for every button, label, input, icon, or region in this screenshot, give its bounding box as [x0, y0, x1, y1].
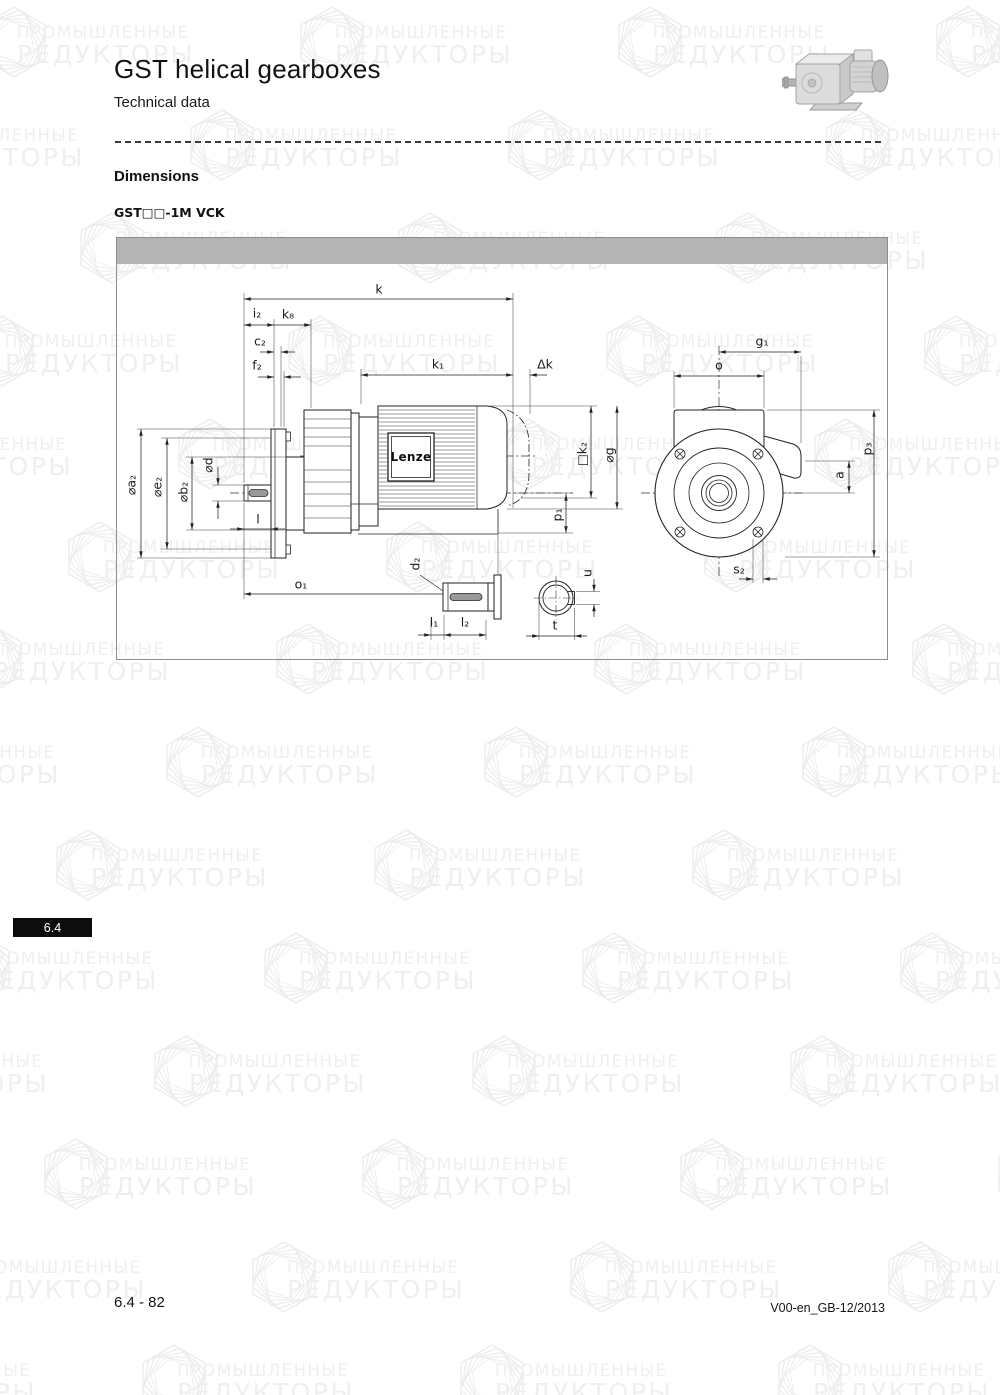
side-view — [230, 406, 573, 558]
shaft-detail — [420, 575, 578, 620]
dim-label-p: p₁ — [551, 509, 564, 522]
shaft-keyway — [249, 490, 268, 497]
dim-label-d: d₂ — [409, 558, 422, 571]
dim-label-b: ⌀b₂ — [177, 482, 190, 502]
dim-label-l: l₁ — [430, 616, 438, 629]
dim-label-u: u — [581, 569, 594, 577]
dim-label-d: ⌀d — [202, 457, 215, 472]
dim-label-i: i₂ — [253, 307, 261, 320]
dim-label-k: k₁ — [432, 358, 444, 371]
footer-version: V00-en_GB-12/2013 — [700, 1301, 885, 1315]
page-title: GST helical gearboxes — [114, 54, 381, 85]
dim-label-k: k₈ — [282, 308, 294, 321]
dimension-drawing — [117, 238, 887, 659]
dim-label-l: l₂ — [461, 616, 469, 629]
dim-label-l: l — [256, 513, 259, 526]
technical-drawing: ki₂k₈c₂f₂k₁Δk⌀a₂⌀e₂⌀b₂⌀dlo₁□k₂⌀gp₁g₁op₃a… — [116, 237, 888, 660]
dim-label-k: Δk — [537, 358, 553, 371]
dim-label-p: p₃ — [861, 443, 874, 456]
dim-label-f: f₂ — [252, 359, 261, 372]
front-view — [641, 346, 803, 578]
section-heading: Dimensions — [114, 168, 199, 185]
dim-label-c: c₂ — [254, 335, 266, 348]
section-tab-badge: 6.4 — [13, 918, 92, 937]
dim-label-e: ⌀e₂ — [151, 477, 164, 497]
dim-label-g: ⌀g — [603, 447, 616, 462]
dim-label-s: s₂ — [733, 563, 745, 576]
dim-label-o: o₁ — [295, 578, 308, 591]
dim-label-k: k — [375, 283, 382, 296]
document-page: ПРОМЫШЛЕННЫЕРЕДУКТОРЫПРОМЫШЛЕННЫЕРЕДУКТО… — [0, 0, 1000, 1395]
gearmotor-photo — [782, 46, 897, 120]
model-designation: GST□□-1M VCK — [114, 205, 225, 220]
dashed-separator — [115, 141, 885, 143]
page-subtitle: Technical data — [114, 94, 210, 111]
footer-page-number: 6.4 - 82 — [114, 1294, 165, 1311]
dim-label-t: t — [553, 619, 558, 632]
dim-label-k: □k₂ — [576, 442, 589, 466]
dim-label-g: g₁ — [756, 335, 769, 348]
dim-label-a: a — [833, 471, 846, 479]
dim-label-a: ⌀a₂ — [125, 475, 138, 495]
dim-label-o: o — [715, 359, 723, 372]
brand-label: Lenze — [391, 450, 432, 464]
